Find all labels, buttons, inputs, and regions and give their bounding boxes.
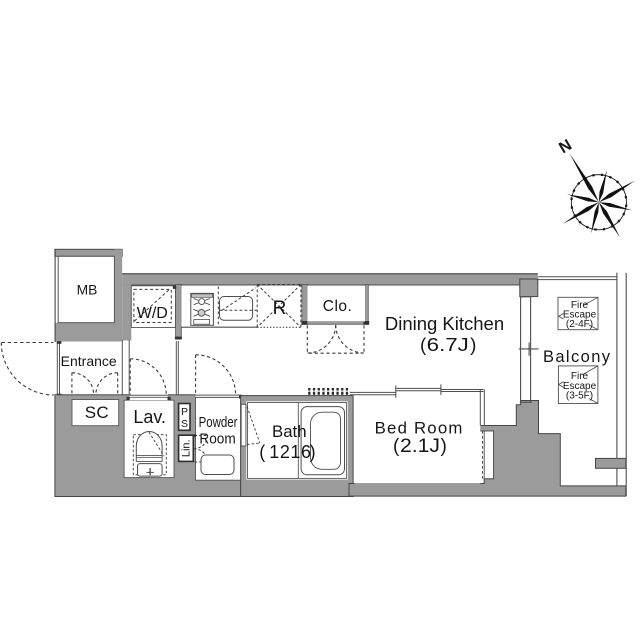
svg-text:): ) — [441, 436, 447, 457]
svg-text:(2-4F): (2-4F) — [566, 319, 593, 330]
svg-text:SC: SC — [85, 403, 109, 422]
svg-text:Powder: Powder — [199, 415, 238, 431]
svg-text:Lav.: Lav. — [133, 407, 166, 427]
svg-text:MB: MB — [77, 282, 98, 297]
svg-text:(: ( — [393, 436, 400, 457]
svg-text:): ) — [470, 334, 476, 355]
svg-text:(3-5F): (3-5F) — [566, 391, 593, 402]
svg-text:Entrance: Entrance — [61, 353, 117, 369]
svg-text:Room: Room — [199, 431, 235, 447]
svg-text:6.7J: 6.7J — [427, 334, 469, 355]
svg-text:2.1J: 2.1J — [400, 436, 440, 457]
svg-text:1216: 1216 — [269, 442, 311, 462]
svg-text:W/D: W/D — [137, 305, 168, 322]
svg-text:P: P — [181, 406, 188, 418]
svg-text:Lin.: Lin. — [181, 439, 193, 457]
svg-text:Balcony: Balcony — [543, 348, 612, 366]
svg-text:Dining Kitchen: Dining Kitchen — [385, 313, 504, 334]
svg-text:Bath: Bath — [272, 422, 307, 441]
svg-text:(: ( — [259, 442, 265, 462]
svg-text:Bed Room: Bed Room — [375, 418, 464, 437]
svg-text:): ) — [310, 442, 316, 462]
svg-text:R: R — [273, 298, 287, 319]
svg-text:Clo.: Clo. — [323, 298, 353, 315]
svg-text:S: S — [181, 418, 188, 430]
